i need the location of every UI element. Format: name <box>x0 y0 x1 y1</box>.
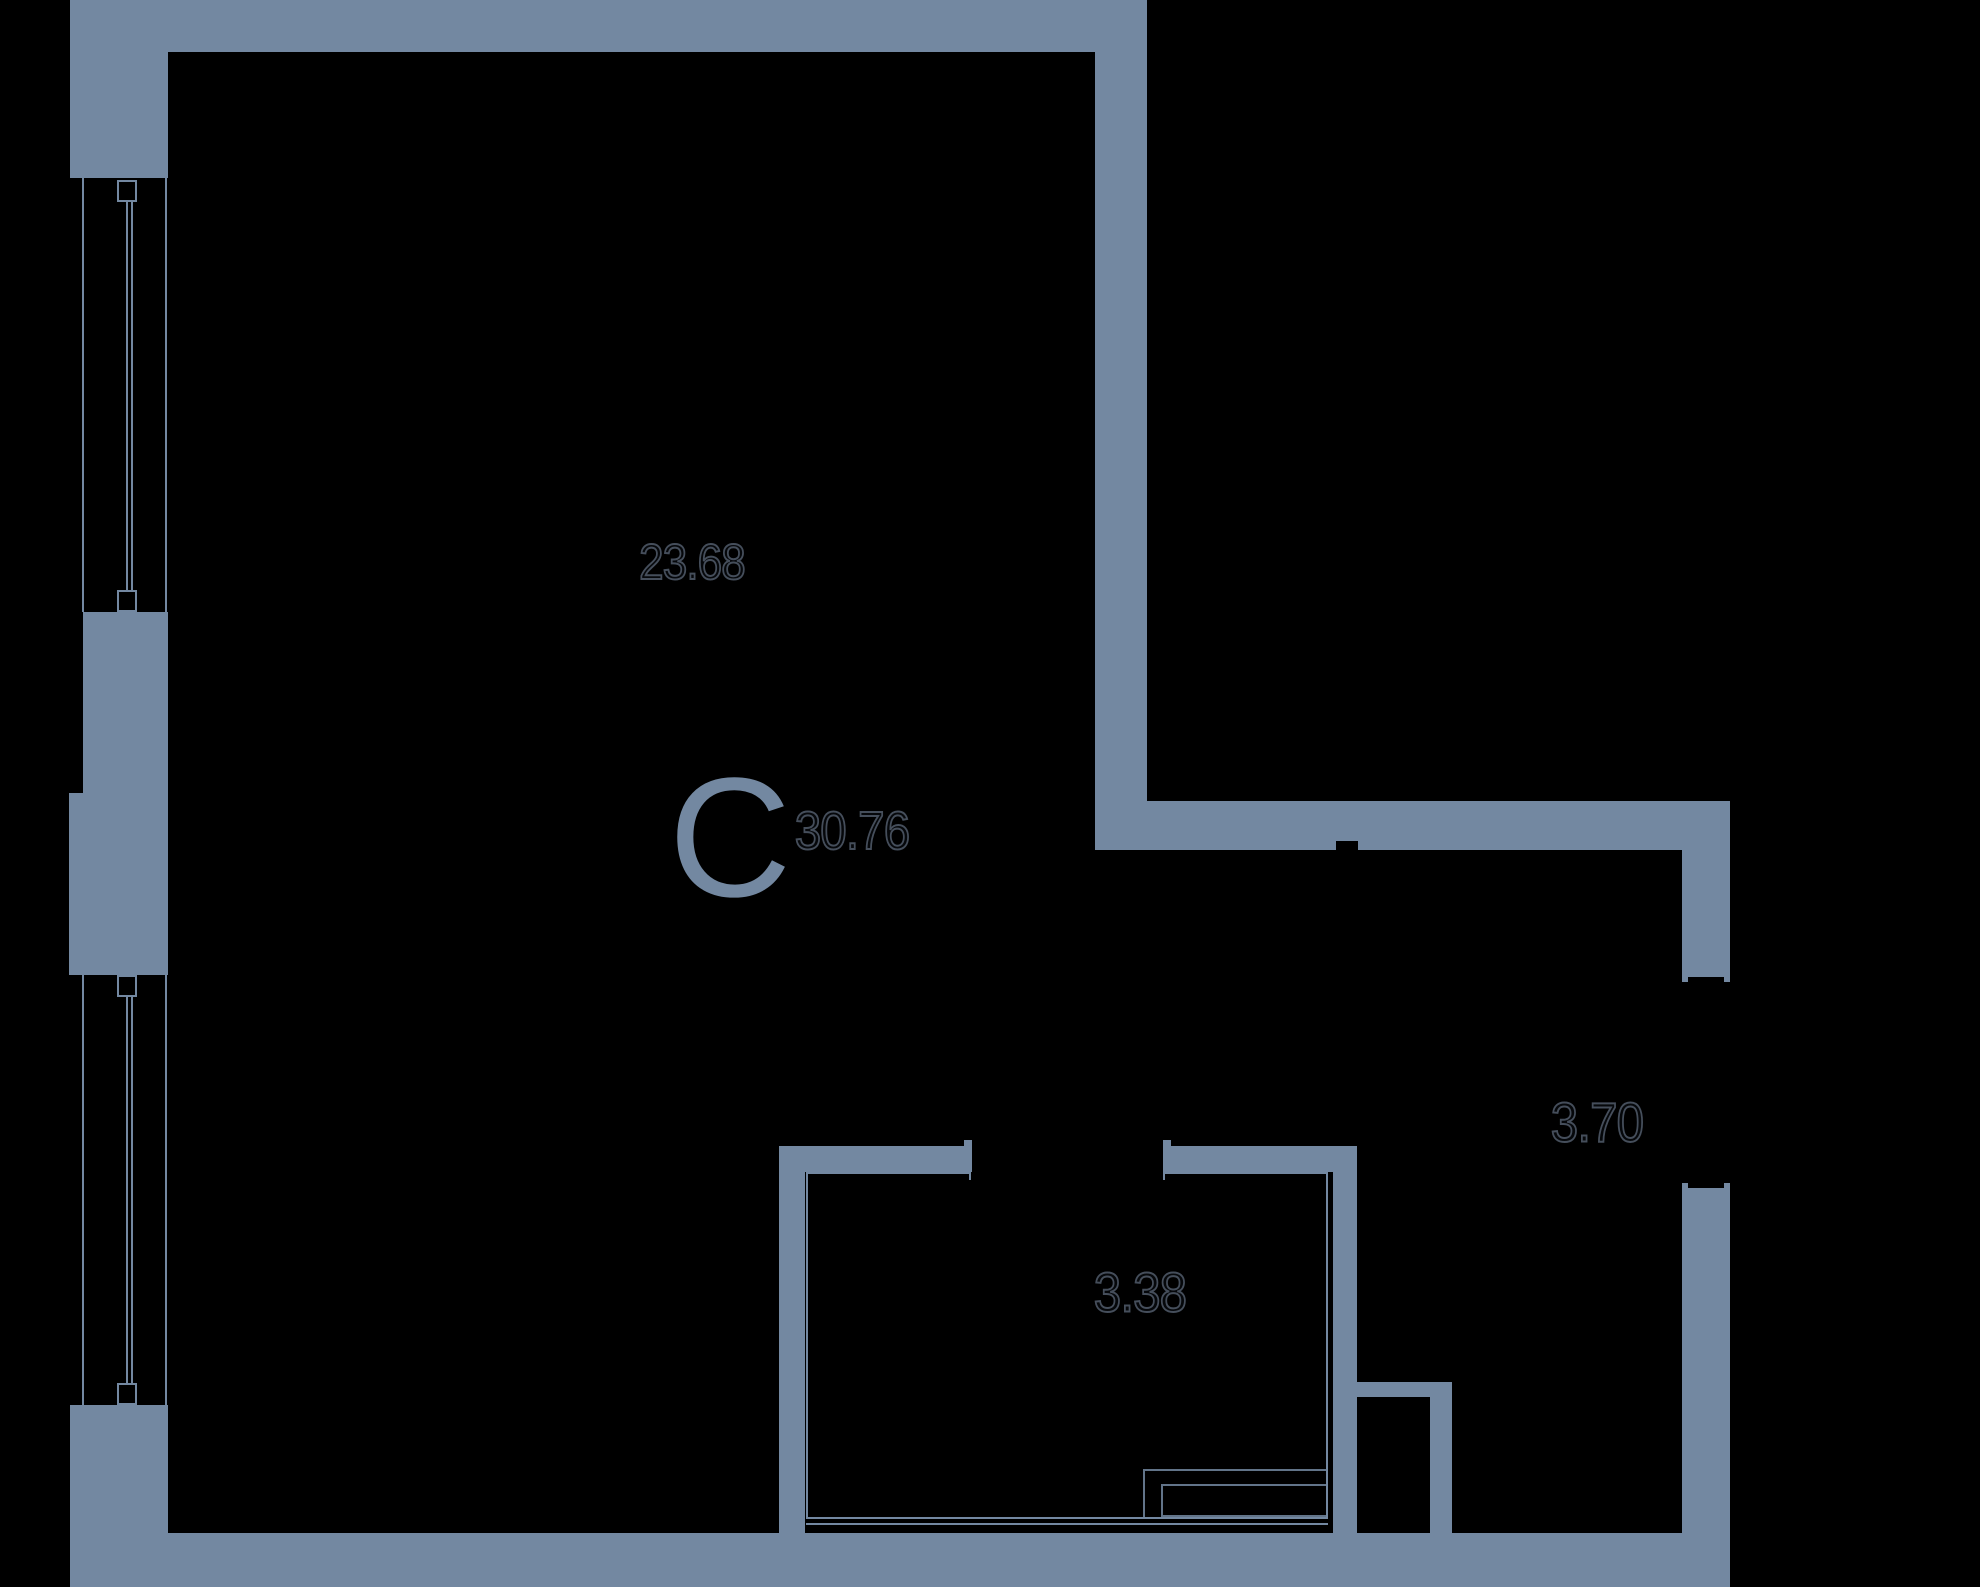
window-sill-line <box>82 975 84 1405</box>
entrance-door-frame-mark <box>1724 1183 1730 1188</box>
wall-left-pier-lower <box>69 793 168 975</box>
window-glass-line <box>131 997 133 1385</box>
wall-inner-face-line <box>165 975 167 1405</box>
label-total-area: 30.76 <box>795 800 910 862</box>
entrance-door-frame-mark <box>1682 1183 1688 1188</box>
bathroom-wall-right <box>1333 1146 1357 1536</box>
label-bathroom-area: 3.38 <box>1094 1260 1186 1325</box>
bathroom-wall-top-left <box>779 1146 972 1172</box>
wall-right-below-entrance <box>1682 1188 1730 1587</box>
bathroom-inner-line-bottom <box>806 1523 1328 1525</box>
bathroom-wall-top-right <box>1163 1146 1333 1172</box>
wall-top <box>70 0 1147 52</box>
wall-right-above-entrance <box>1682 850 1730 977</box>
entrance-door-frame-mark <box>1682 977 1688 982</box>
bathroom-door-frame-mark <box>1163 1140 1171 1146</box>
wall-left-pier-upper <box>83 612 168 793</box>
wall-mid-notch <box>1336 841 1358 850</box>
bathroom-inner-line-top <box>806 1172 971 1174</box>
unit-type-letter: С <box>669 753 792 923</box>
bathroom-wall-left <box>779 1146 805 1535</box>
shower-tray-inner <box>1161 1484 1328 1517</box>
wall-corner-bottom-left <box>70 1405 168 1533</box>
window-glass-line <box>126 997 128 1385</box>
floor-plan: С 30.76 23.68 3.70 3.38 <box>0 0 1980 1587</box>
label-hallway-area: 3.70 <box>1551 1090 1643 1155</box>
window-frame-bracket <box>117 180 137 202</box>
wall-mid-horizontal <box>1095 801 1730 850</box>
window-frame-bracket <box>117 1383 137 1405</box>
entrance-door-frame-mark <box>1724 977 1730 982</box>
bathroom-inner-line-left <box>806 1172 808 1519</box>
label-main-room-area: 23.68 <box>639 533 745 591</box>
wall-right-upper-vertical <box>1095 52 1147 801</box>
window-glass-line <box>126 202 128 592</box>
niche-wall-top <box>1357 1382 1452 1397</box>
bathroom-inner-line-jog <box>1163 1172 1165 1180</box>
bathroom-door-frame-mark <box>964 1140 972 1146</box>
bathroom-inner-line-jog <box>969 1172 971 1180</box>
bathroom-inner-line-top <box>1163 1172 1328 1174</box>
niche-wall-right <box>1430 1397 1452 1533</box>
wall-bottom <box>70 1533 1683 1587</box>
bathroom-inner-line-right <box>1326 1172 1328 1519</box>
wall-inner-face-line <box>165 178 167 612</box>
wall-corner-top-left <box>70 0 168 178</box>
window-sill-line <box>82 178 84 612</box>
window-glass-line <box>131 202 133 592</box>
window-frame-bracket <box>117 975 137 997</box>
window-frame-bracket <box>117 590 137 612</box>
